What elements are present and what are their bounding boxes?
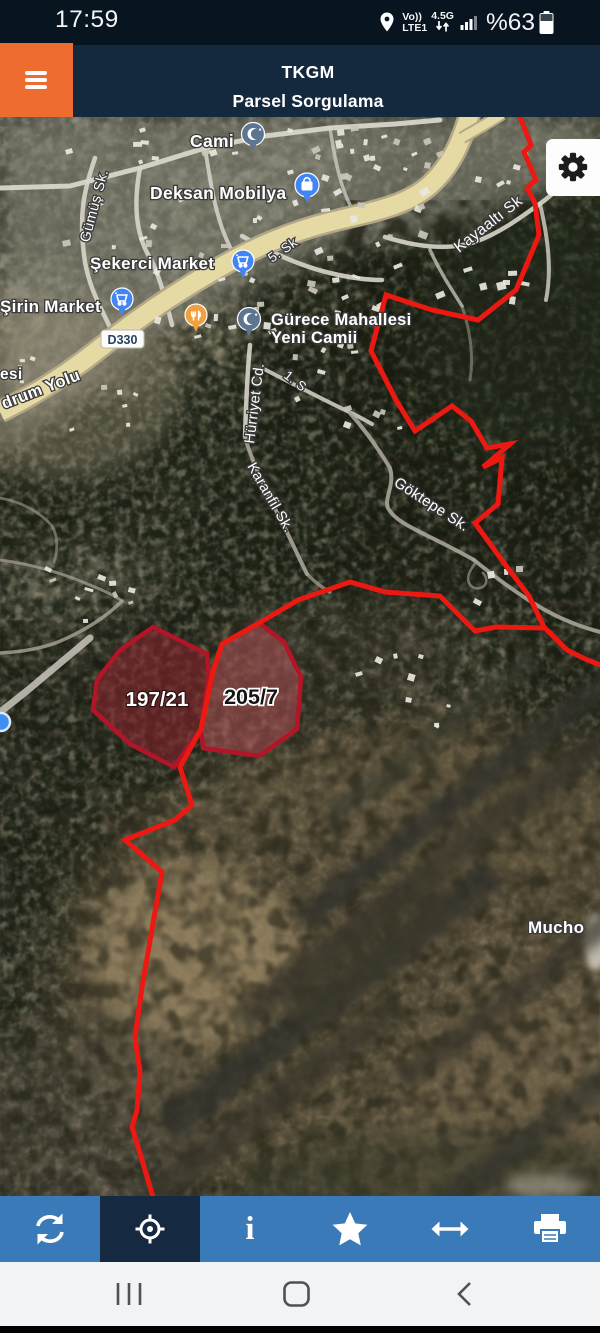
svg-text:Deksan Mobilya: Deksan Mobilya [150,183,286,203]
svg-text:197/21: 197/21 [126,688,189,711]
svg-text:Cami: Cami [190,131,234,151]
svg-text:Şekerci Market: Şekerci Market [90,254,214,273]
svg-text:205/7: 205/7 [224,685,278,709]
svg-text:Gürece Mahallesi: Gürece Mahallesi [271,311,412,329]
svg-text:esi: esi [0,366,22,383]
svg-text:Şirin Market: Şirin Market [0,297,101,316]
svg-text:Yeni Camii: Yeni Camii [271,329,357,347]
svg-text:D330: D330 [108,333,138,347]
svg-text:Mucho: Mucho [528,918,584,937]
